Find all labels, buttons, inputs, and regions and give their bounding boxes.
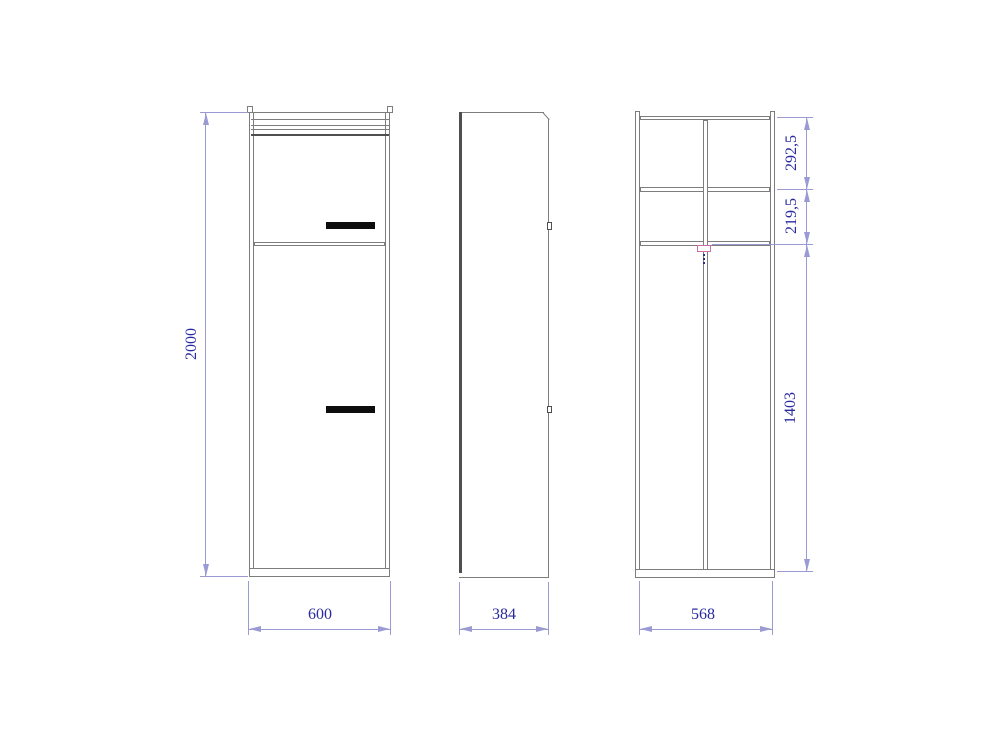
extension-line	[777, 571, 813, 572]
dimension-carcass-sections: 292,5 219,5 1403	[0, 0, 1000, 750]
arrowhead-icon	[804, 118, 810, 130]
arrowhead-icon	[804, 177, 810, 189]
extension-line	[712, 244, 813, 245]
arrowhead-icon	[804, 190, 810, 202]
dimension-label-lower-section: 1403	[783, 392, 799, 424]
arrowhead-icon	[804, 245, 810, 257]
arrowhead-icon	[804, 232, 810, 244]
dimension-label-upper-section: 292,5	[784, 135, 800, 171]
arrowhead-icon	[804, 559, 810, 571]
dimension-label-middle-section: 219,5	[784, 198, 800, 234]
technical-drawing: 2000 600 384	[0, 0, 1000, 750]
